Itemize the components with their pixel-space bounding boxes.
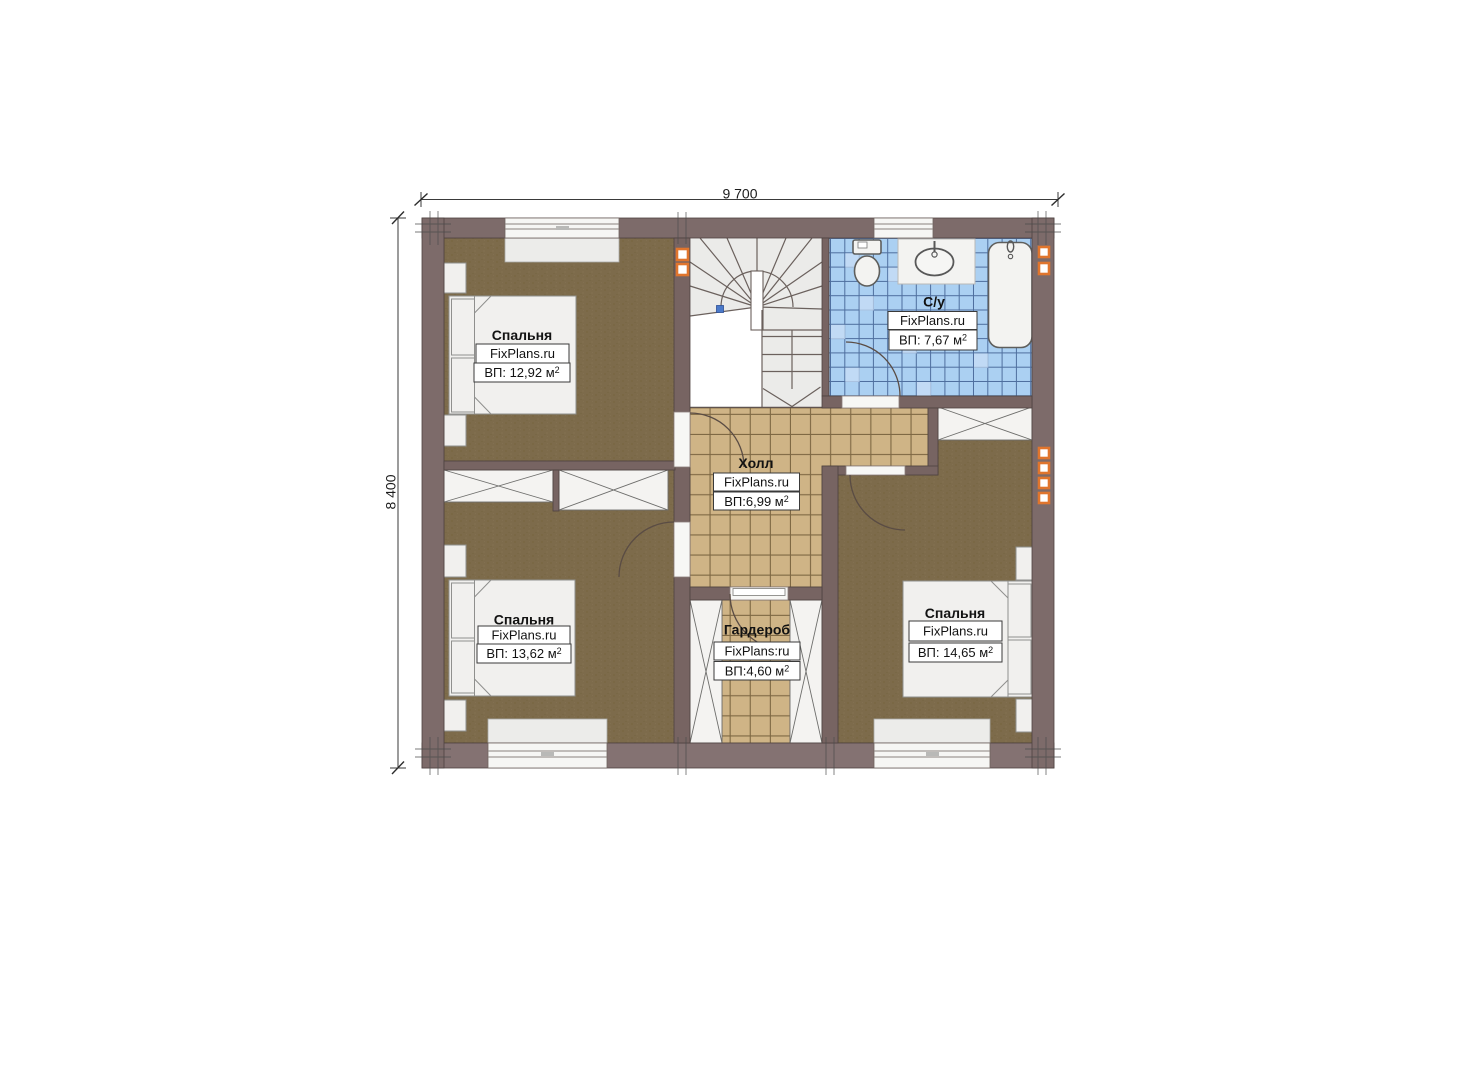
svg-text:ВП: 7,67 м2: ВП: 7,67 м2 <box>899 333 967 348</box>
svg-text:FixPlans.ru: FixPlans.ru <box>923 624 988 639</box>
svg-text:ВП:6,99 м2: ВП:6,99 м2 <box>724 494 789 509</box>
svg-text:9 700: 9 700 <box>722 186 757 202</box>
svg-text:ВП: 14,65 м2: ВП: 14,65 м2 <box>918 645 993 660</box>
svg-text:ВП: 13,62 м2: ВП: 13,62 м2 <box>486 646 561 661</box>
svg-text:FixPlans.ru: FixPlans.ru <box>724 475 789 490</box>
svg-text:Спальня: Спальня <box>492 327 552 343</box>
svg-text:С/у: С/у <box>923 294 945 310</box>
svg-text:FixPlans.ru: FixPlans.ru <box>900 313 965 328</box>
svg-text:Спальня: Спальня <box>925 605 985 621</box>
svg-text:FixPlans.ru: FixPlans.ru <box>490 346 555 361</box>
svg-text:Гардероб: Гардероб <box>724 622 791 638</box>
svg-text:FixPlans:ru: FixPlans:ru <box>724 644 789 659</box>
svg-text:ВП:4,60 м2: ВП:4,60 м2 <box>725 664 790 679</box>
svg-text:Спальня: Спальня <box>494 612 554 628</box>
svg-text:Холл: Холл <box>738 455 773 471</box>
svg-text:FixPlans.ru: FixPlans.ru <box>491 628 556 643</box>
svg-text:ВП: 12,92 м2: ВП: 12,92 м2 <box>484 365 559 380</box>
svg-text:8 400: 8 400 <box>383 474 399 509</box>
